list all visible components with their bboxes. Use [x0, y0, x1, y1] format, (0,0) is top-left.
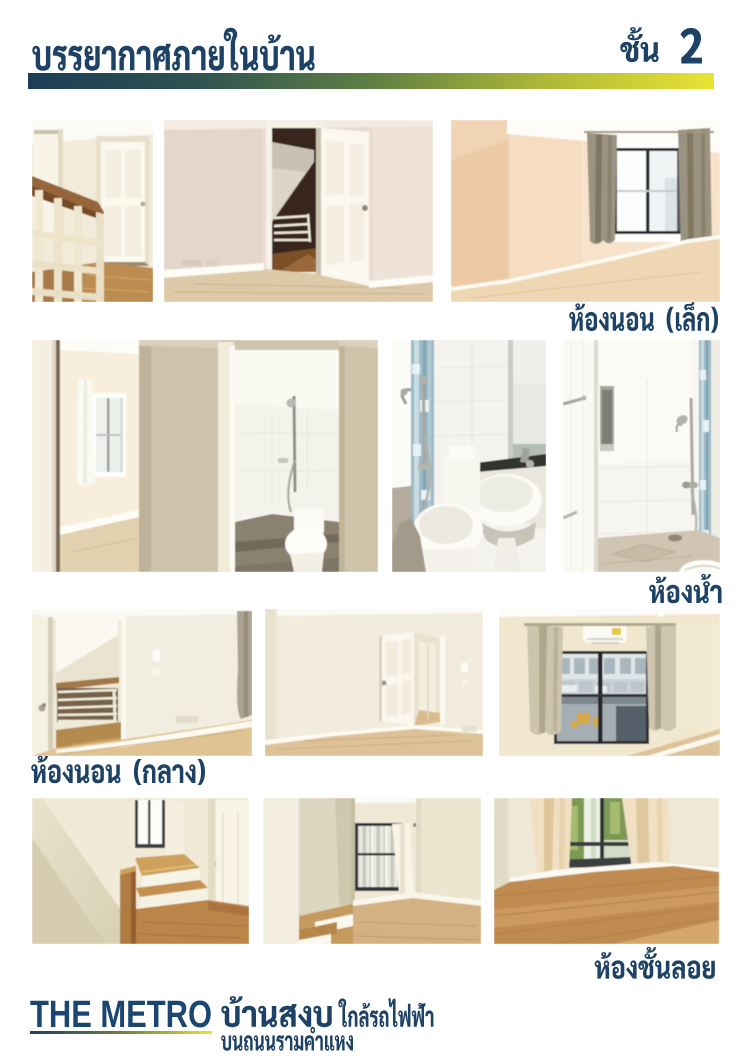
svg-text:THE METRO: THE METRO — [30, 994, 212, 1036]
